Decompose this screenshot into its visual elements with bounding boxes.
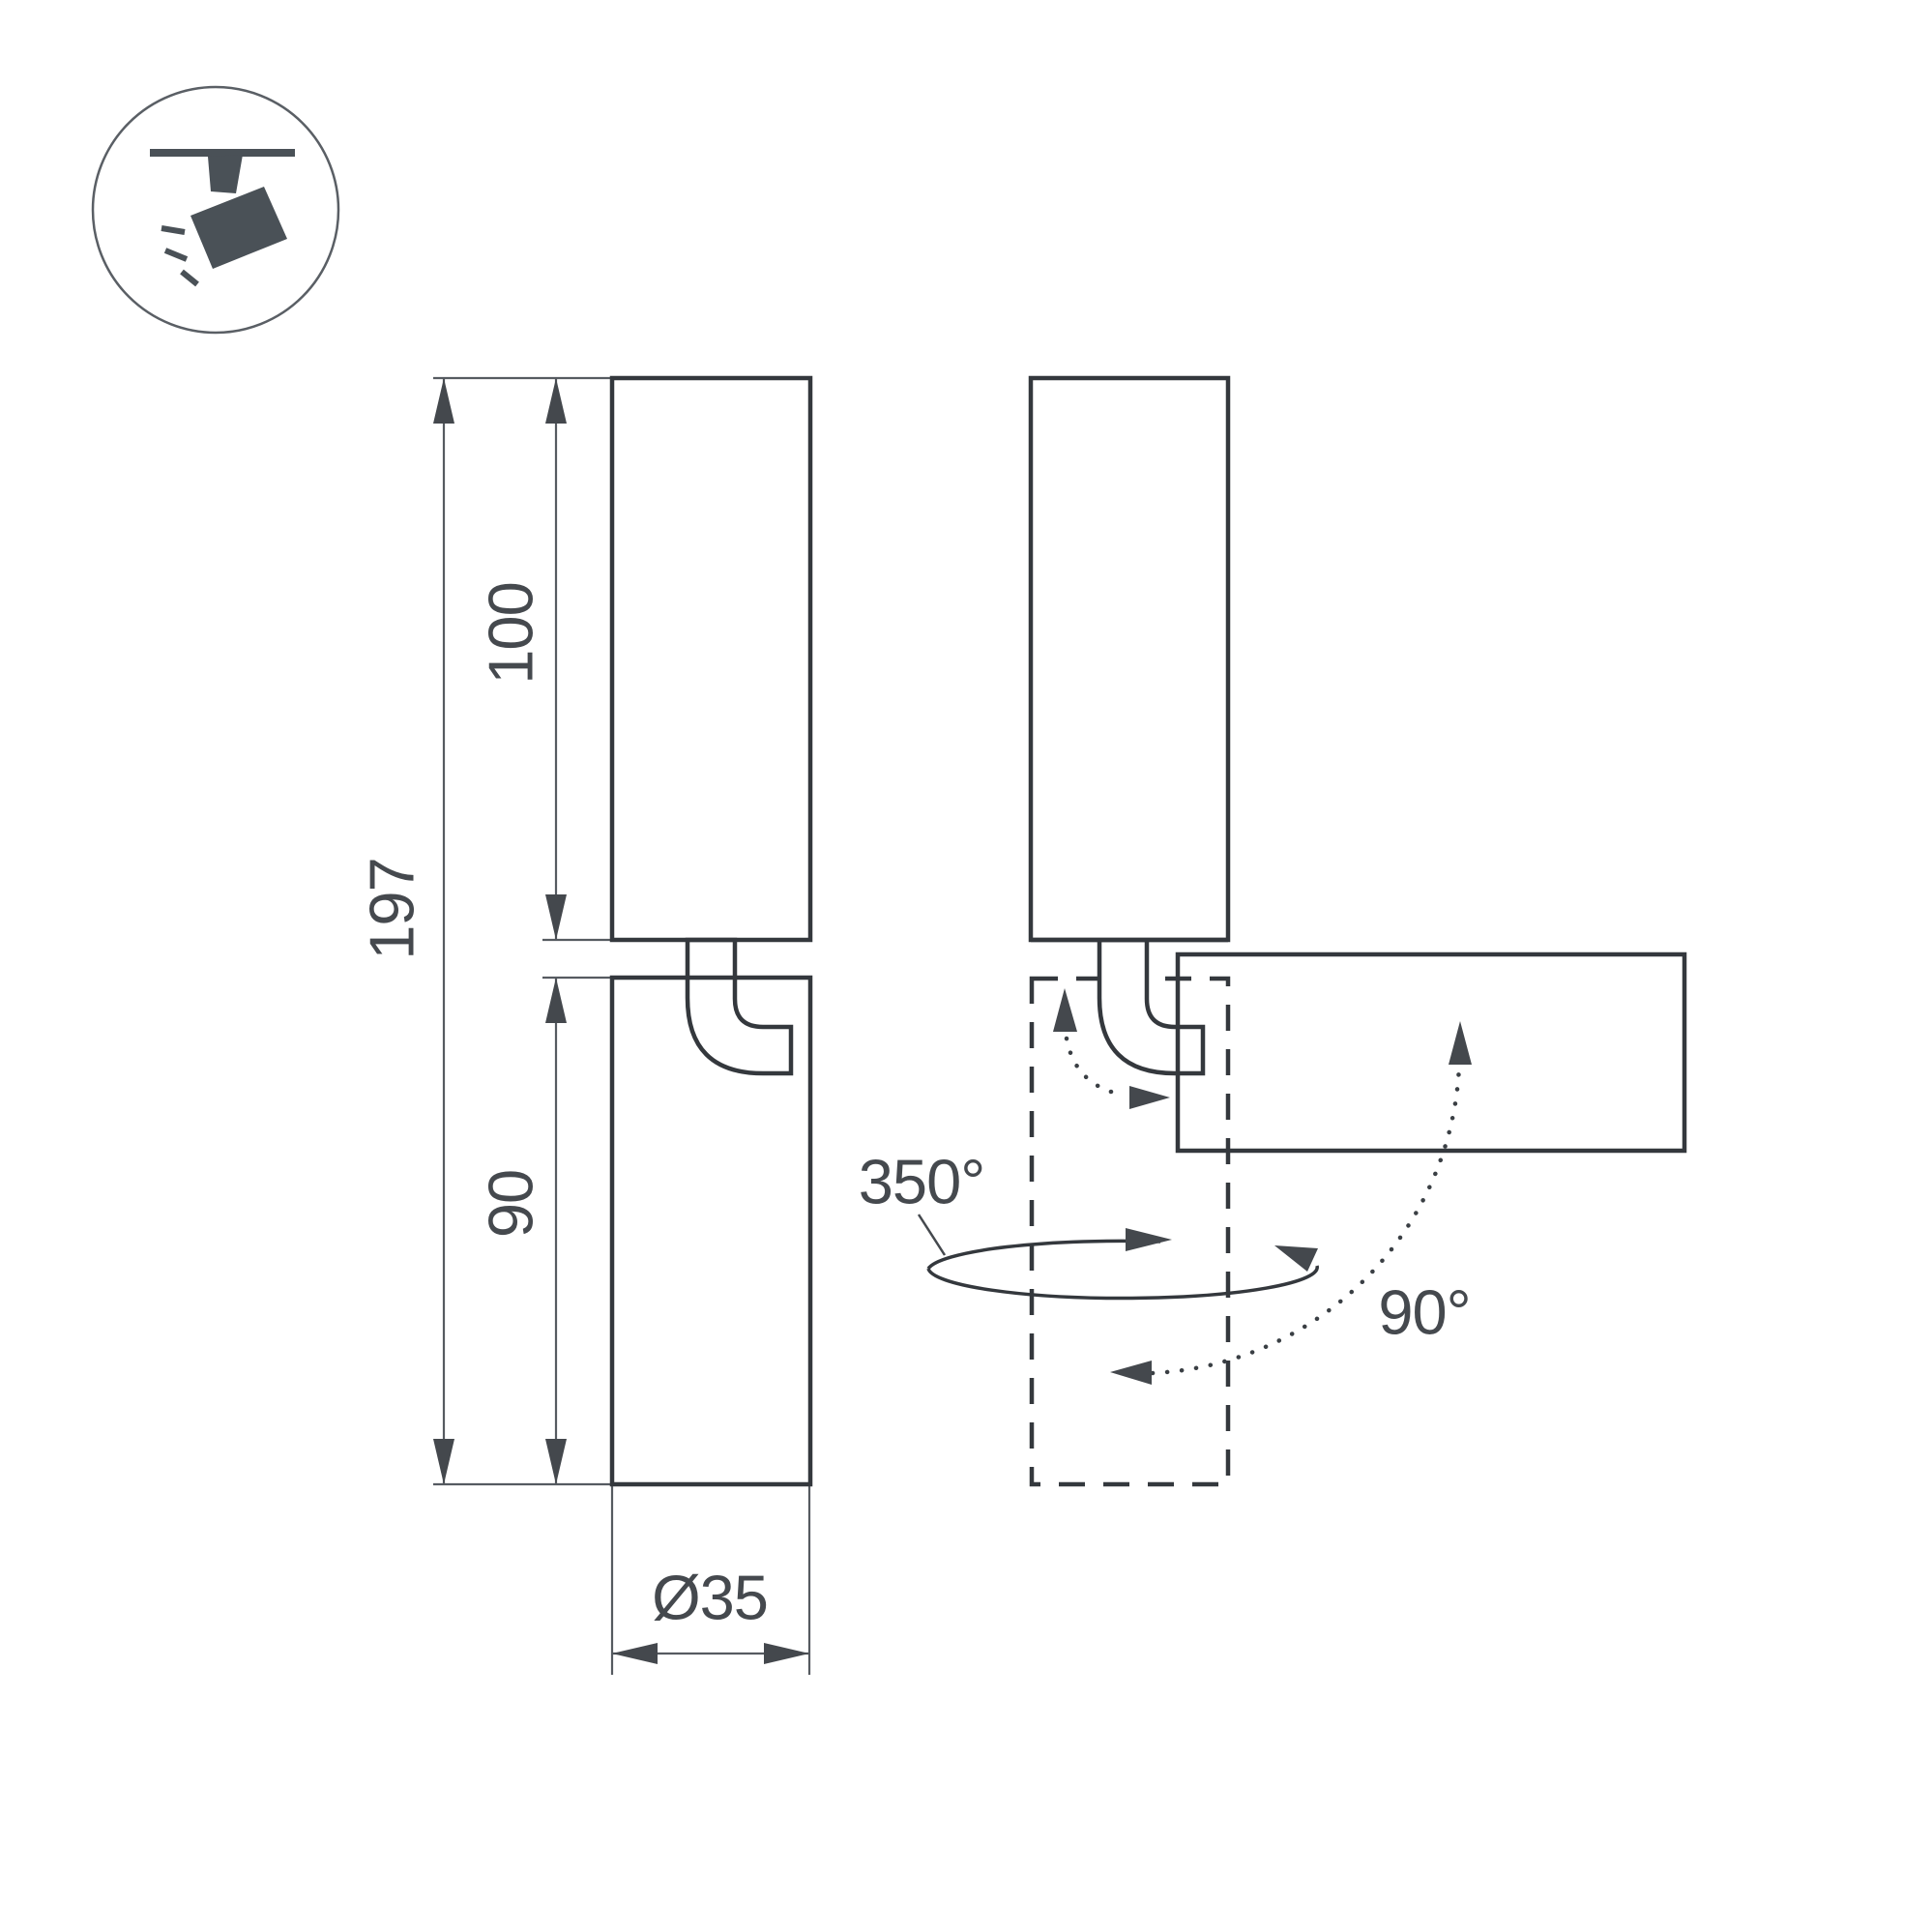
arrowhead-up: [1449, 1021, 1472, 1065]
arrowhead-right: [1129, 1086, 1170, 1109]
head-tilted-horizontal: [1178, 954, 1684, 1151]
right-view-upper-body: [1031, 378, 1228, 940]
track-spotlight-icon: [93, 87, 338, 333]
arrowhead-down: [545, 894, 567, 940]
arrowhead-up: [545, 378, 567, 424]
icon-ceiling-bar: [150, 149, 295, 157]
arrowhead-left: [612, 1643, 658, 1664]
pan-angle-label: 350°: [859, 1147, 984, 1217]
arrowhead-right: [764, 1643, 809, 1664]
left-view-elbow-stem: [688, 940, 791, 1073]
rotation-ellipse-bottom-arc: [928, 1266, 1317, 1299]
dimension-label-diameter: Ø35: [652, 1563, 768, 1633]
right-view-fixture: 350° 90°: [859, 378, 1684, 1484]
tilt-angle-label: 90°: [1378, 1277, 1470, 1348]
left-view-upper-body: [612, 378, 810, 940]
arrowhead-down: [433, 1439, 454, 1484]
dimension-head-length: 90: [476, 978, 568, 1484]
arrowhead-down-left: [1274, 1245, 1318, 1272]
right-view-elbow-stem: [1099, 940, 1203, 1073]
dimension-label-total: 197: [357, 858, 427, 959]
drawing-canvas: 197 100 90 Ø35: [0, 0, 1932, 1932]
dimension-label-upper: 100: [476, 582, 546, 684]
dimension-total-height: 197: [357, 378, 455, 1484]
technical-drawing: 197 100 90 Ø35: [0, 0, 1932, 1932]
arrowhead-down: [545, 1439, 567, 1484]
arrowhead-up: [433, 378, 454, 424]
arrowhead-up: [1053, 988, 1077, 1032]
arrowhead-left: [1110, 1361, 1152, 1385]
pan-rotation-indicator: 350°: [859, 1147, 1318, 1299]
dimension-upper-body: 100: [476, 378, 568, 940]
light-ray-icon: [161, 228, 185, 232]
label-leader-line: [919, 1215, 945, 1255]
tilt-rotation-indicator: 90°: [1110, 1021, 1472, 1385]
arrowhead-up: [545, 978, 567, 1023]
arrowhead-right: [1126, 1228, 1172, 1251]
left-view-fixture: 197 100 90 Ø35: [357, 378, 811, 1675]
dimension-diameter: Ø35: [612, 1563, 809, 1665]
dimension-label-lower: 90: [476, 1170, 546, 1238]
